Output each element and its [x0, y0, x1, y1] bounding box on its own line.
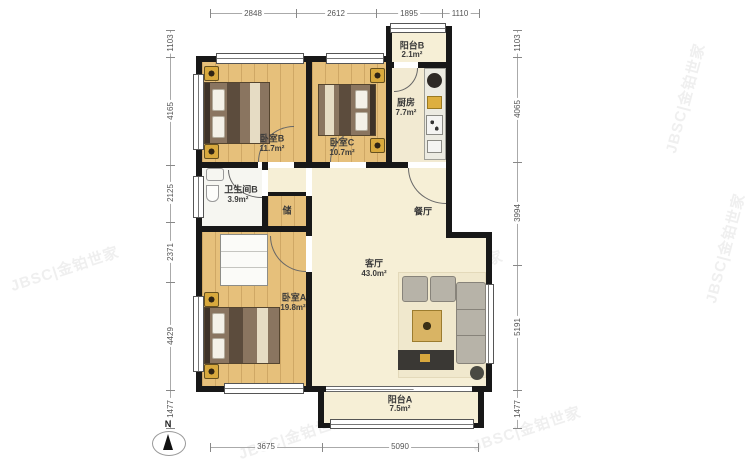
room-label-storage: 储 — [282, 207, 291, 216]
dimension-label: 2125 — [167, 182, 175, 204]
dimension-label: 1477 — [167, 398, 175, 420]
nightstand-icon — [204, 66, 219, 81]
tv-console-accent — [420, 354, 430, 362]
wall — [306, 272, 312, 392]
room-label-bedroom-a: 卧室A — [282, 294, 307, 303]
dimension-tick — [166, 222, 175, 223]
coffee-table-icon — [412, 310, 442, 342]
pillow — [212, 338, 225, 359]
dimension-label: 1895 — [398, 10, 420, 18]
bed-fold — [339, 85, 351, 135]
bed-icon — [318, 84, 376, 136]
armchair-icon — [430, 276, 456, 302]
window — [193, 74, 204, 150]
room-area-bedroom-a: 19.8m² — [280, 304, 305, 312]
dimension-tick — [478, 443, 479, 452]
bed-headboard — [205, 308, 210, 363]
window — [193, 296, 204, 372]
nightstand-icon — [204, 364, 219, 379]
dimension-tick — [479, 9, 480, 18]
room-area-bedroom-c: 10.7m² — [329, 149, 354, 157]
bed-icon — [204, 307, 280, 364]
wall — [306, 56, 312, 162]
bed-runner — [325, 85, 334, 135]
dimension-tick — [166, 282, 175, 283]
north-label: N — [165, 419, 172, 429]
dimension-label: 3675 — [255, 443, 277, 451]
dimension-tick — [513, 390, 522, 391]
sofa-icon — [456, 282, 486, 364]
window — [224, 383, 304, 394]
dimension-label: 4165 — [167, 100, 175, 122]
cooking-pot-icon — [427, 73, 442, 88]
dimension-tick — [166, 390, 175, 391]
dimension-tick — [376, 9, 377, 18]
dimension-tick — [210, 443, 211, 452]
wardrobe-icon — [220, 234, 268, 286]
dimension-label: 3994 — [514, 202, 522, 224]
pillow — [212, 313, 225, 334]
pillow — [355, 112, 368, 131]
vanity-sink-icon — [206, 168, 224, 181]
dimension-tick — [296, 9, 297, 18]
dimension-label: 5090 — [389, 443, 411, 451]
window — [193, 176, 204, 218]
dimension-label: 1110 — [450, 10, 471, 18]
dimension-tick — [513, 428, 522, 429]
nightstand-icon — [370, 138, 385, 153]
dimension-label: 1103 — [167, 32, 175, 53]
sliding-door — [326, 386, 472, 392]
dimension-label: 4429 — [167, 325, 175, 347]
wall — [446, 162, 452, 238]
dimension-line-left — [170, 30, 171, 428]
room-area-living: 43.0m² — [361, 270, 386, 278]
dimension-tick — [513, 57, 522, 58]
bed-fold — [227, 83, 240, 143]
room-label-dining: 餐厅 — [414, 208, 432, 217]
window — [216, 53, 304, 64]
bed-headboard — [370, 85, 375, 135]
dimension-label: 2371 — [167, 241, 175, 263]
room-label-living: 客厅 — [365, 260, 383, 269]
dimension-label: 1103 — [514, 32, 522, 53]
dimension-line-right — [517, 30, 518, 428]
bed-runner — [250, 83, 260, 143]
watermark: JBSC|金铂世家 — [8, 241, 122, 296]
wall — [294, 162, 330, 168]
window — [330, 419, 474, 429]
dimension-tick — [442, 9, 443, 18]
room-label-bedroom-c: 卧室C — [330, 139, 355, 148]
toilet-icon — [206, 185, 219, 202]
window — [326, 53, 384, 64]
bed-headboard — [205, 83, 210, 143]
bed-fold — [229, 308, 243, 363]
room-label-kitchen: 厨房 — [397, 99, 415, 108]
room-area-kitchen: 7.7m² — [396, 109, 417, 117]
pillow — [212, 89, 225, 111]
armchair-icon — [402, 276, 428, 302]
hallway-floor — [268, 168, 306, 192]
dimension-tick — [166, 57, 175, 58]
dimension-tick — [513, 162, 522, 163]
room-label-bathroom: 卫生间B — [224, 186, 258, 195]
nightstand-icon — [370, 68, 385, 83]
wall — [446, 26, 452, 168]
watermark: JBSC|金铂世家 — [700, 191, 746, 306]
dimension-label: 1477 — [514, 398, 522, 420]
watermark: JBSC|金铂世家 — [470, 401, 584, 456]
wall — [196, 162, 258, 168]
bed-runner — [257, 308, 268, 363]
wall — [366, 162, 408, 168]
dimension-label: 2612 — [325, 10, 347, 18]
sink-icon — [427, 140, 442, 153]
dimension-tick — [513, 265, 522, 266]
room-area-balcony-b: 2.1m² — [402, 51, 423, 59]
window — [390, 23, 446, 33]
stove-icon — [426, 115, 443, 135]
dimension-tick — [322, 443, 323, 452]
floor-plan: JBSC|金铂世家 JBSC|金铂世家 JBSC|金铂世家 JBSC|金铂世家 … — [0, 0, 746, 460]
room-area-balcony-a: 7.5m² — [390, 405, 411, 413]
dimension-tick — [166, 30, 175, 31]
wall — [306, 196, 312, 236]
nightstand-icon — [204, 292, 219, 307]
north-arrow-icon — [163, 434, 173, 450]
room-area-bathroom: 3.9m² — [228, 196, 249, 204]
pillow — [355, 90, 368, 109]
dimension-tick — [513, 30, 522, 31]
dimension-tick — [210, 9, 211, 18]
plant-icon — [470, 366, 484, 380]
dimension-label: 4065 — [514, 98, 522, 120]
nightstand-icon — [204, 144, 219, 159]
dimension-label: 5191 — [514, 316, 522, 338]
wall — [386, 56, 392, 168]
wall — [196, 226, 312, 232]
pillow — [212, 116, 225, 138]
dimension-label: 2848 — [242, 10, 264, 18]
wall — [268, 192, 306, 196]
dimension-line-bottom — [210, 447, 478, 448]
kitchen-item — [427, 96, 442, 109]
room-label-bedroom-b: 卧室B — [260, 135, 285, 144]
dimension-tick — [166, 165, 175, 166]
wall — [262, 162, 268, 170]
room-area-bedroom-b: 11.7m² — [260, 145, 285, 153]
watermark: JBSC|金铂世家 — [660, 41, 710, 156]
